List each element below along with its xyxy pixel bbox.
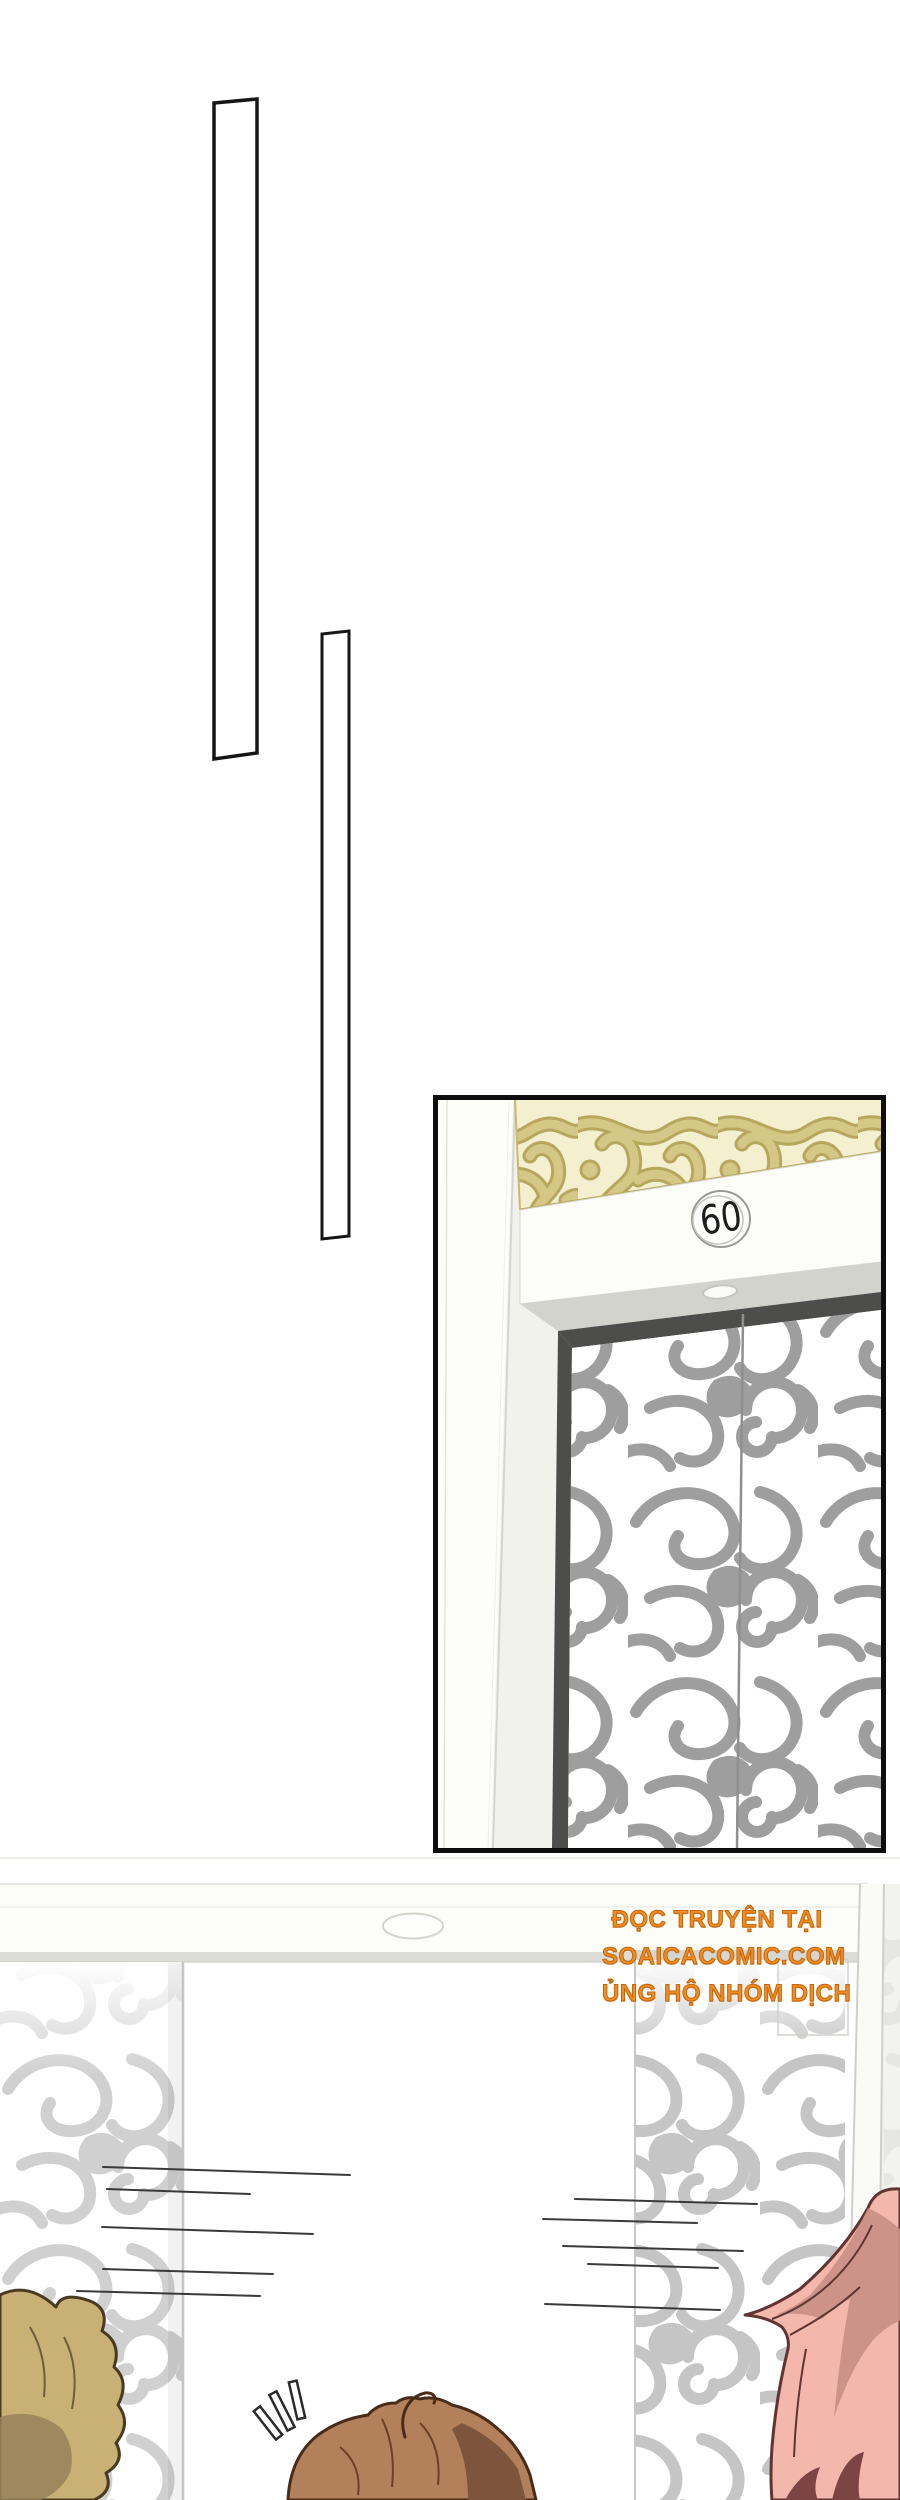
credit-text: ĐỌC TRUYỆN TẠI SOAICACOMIC.COM ỦNG HỘ NH… xyxy=(602,1901,832,2012)
elevator-doors xyxy=(568,1310,881,1848)
bottom-scene-panel: ĐỌC TRUYỆN TẠI SOAICACOMIC.COM ỦNG HỘ NH… xyxy=(0,1857,900,2500)
credit-line-1: ĐỌC TRUYỆN TẠI xyxy=(602,1901,832,1938)
divider-bar-2 xyxy=(322,631,349,1239)
divider-bar-1 xyxy=(214,99,257,759)
comic-page: 60 xyxy=(0,0,900,2500)
floor-number: 60 xyxy=(693,1189,749,1250)
elevator-panel-art xyxy=(438,1100,881,1848)
credit-line-2: SOAICACOMIC.COM xyxy=(602,1938,832,1975)
credit-line-3: ỦNG HỘ NHÓM DỊCH xyxy=(602,1975,832,2012)
scene-door-lamp xyxy=(383,1914,443,1939)
elevator-closeup-panel: 60 xyxy=(433,1095,886,1853)
